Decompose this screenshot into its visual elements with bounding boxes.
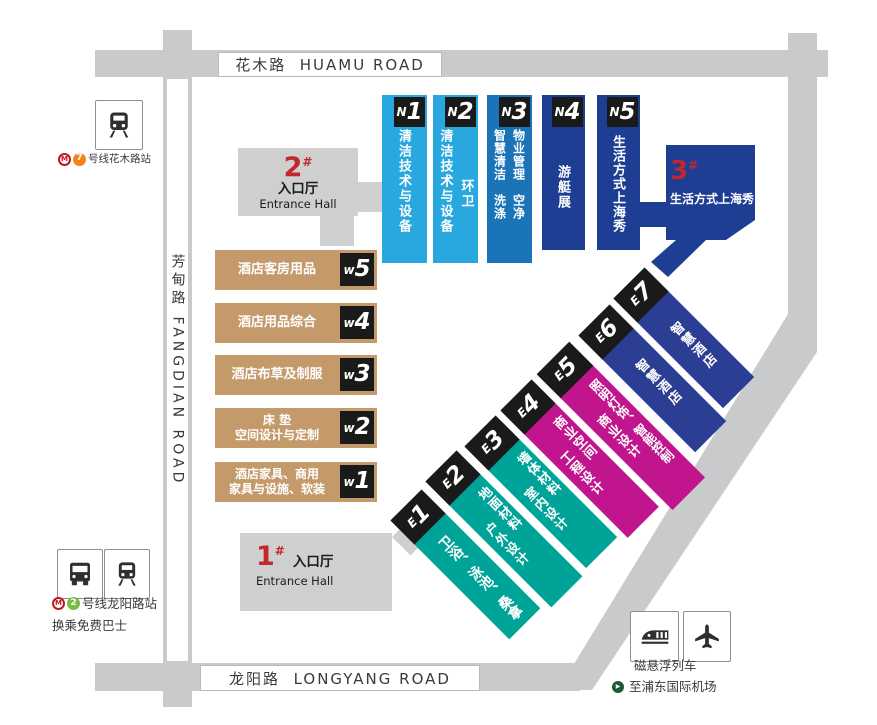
hall-n3-number: N3 — [499, 97, 530, 127]
hall-n1-letter: N — [396, 105, 406, 119]
hall-n4-label: 游艇展 — [542, 129, 585, 246]
bus-icon-box — [57, 549, 103, 599]
hall-w3-label: 酒店布草及制服 — [221, 355, 333, 395]
hall-n2-label: 清洁技术与设备环卫 — [433, 129, 478, 259]
maglev-label: 磁悬浮列车 — [612, 656, 772, 675]
expo-floor-map: 芳甸路 FANGDIAN ROAD 花木路 HUAMU ROAD 龙阳路 LON… — [0, 0, 877, 725]
hall-n1-digit: 1 — [407, 101, 423, 124]
train-icon — [104, 110, 134, 140]
entrance-1-name-en: Entrance Hall — [256, 574, 392, 589]
hall-n5-label: 生活方式上海秀 — [597, 129, 640, 246]
entrance-1-name-cn: 入口厅 — [293, 554, 334, 570]
hall-n4-number: N4 — [552, 97, 583, 127]
metro-line-7-badge: 7 — [73, 153, 86, 166]
airplane-icon-box — [683, 611, 731, 662]
hall-n5-number: N5 — [607, 97, 638, 127]
airplane-icon — [692, 622, 722, 652]
entrance-2-number: 2# — [238, 154, 358, 181]
hall-w4-label: 酒店用品综合 — [221, 303, 333, 343]
station-longyang: M 2 号线龙阳路站 换乘免费巴士 — [52, 594, 202, 636]
hall-w5-label: 酒店客房用品 — [221, 250, 333, 290]
bus-icon — [65, 559, 95, 589]
hall-w4-number: w4 — [340, 306, 374, 339]
metro-station-icon-box — [95, 100, 143, 150]
maglev-destination: 至浦东国际机场 — [629, 677, 717, 696]
hall-n3-label: 智慧清洁 洗涤物业管理 空净 — [487, 129, 532, 259]
hall-n5: N5 生活方式上海秀 — [597, 95, 640, 250]
hall-w3-number: w3 — [340, 358, 374, 391]
metro-line-2-badge: 2 — [67, 597, 80, 610]
train-icon — [113, 560, 141, 588]
road-longyang-label: 龙阳路 LONGYANG ROAD — [200, 665, 480, 691]
hall-w1-number: w1 — [340, 465, 374, 498]
hall-n4: N4 游艇展 — [542, 95, 585, 250]
station-huamu-label: 号线花木路站 — [88, 151, 151, 167]
entrance-hall-2: 2# 入口厅 Entrance Hall — [238, 148, 358, 216]
hall-n1-label: 清洁技术与设备 — [382, 129, 427, 259]
hall-3-number: 3# — [670, 158, 756, 184]
road-huamu-label: 花木路 HUAMU ROAD — [218, 52, 442, 77]
maglev-icon-box — [630, 611, 679, 662]
hall-n2: N2 清洁技术与设备环卫 — [433, 95, 478, 263]
hall-w2-number: w2 — [340, 411, 374, 444]
hall-w2: w2 床 垫空间设计与定制 — [215, 408, 377, 448]
hall-n1-number: N1 — [394, 97, 425, 127]
station-longyang-label: 号线龙阳路站 — [82, 594, 157, 613]
station-maglev: 磁悬浮列车 ▶ 至浦东国际机场 — [612, 656, 772, 697]
hall-w1-label: 酒店家具、商用家具与设施、软装 — [221, 462, 333, 502]
hall-w3: w3 酒店布草及制服 — [215, 355, 377, 395]
hall-n1: N1 清洁技术与设备 — [382, 95, 427, 263]
shanghai-metro-logo-icon: M — [58, 153, 71, 166]
hall-w2-label: 床 垫空间设计与定制 — [221, 408, 333, 448]
hall-w5: w5 酒店客房用品 — [215, 250, 377, 290]
entrance-2-name-cn: 入口厅 — [238, 181, 358, 197]
road-huamu — [95, 50, 828, 77]
entrance-2-name-en: Entrance Hall — [238, 197, 358, 212]
entrance-hall-1: 1# 入口厅 Entrance Hall — [240, 533, 392, 611]
hall-w5-number: w5 — [340, 253, 374, 286]
hall-n3: N3 智慧清洁 洗涤物业管理 空净 — [487, 95, 532, 263]
hall-n2-number: N2 — [445, 97, 476, 127]
entrance-1-number: 1# — [256, 543, 285, 570]
hall-w1: w1 酒店家具、商用家具与设施、软装 — [215, 462, 377, 502]
direction-arrow-icon: ▶ — [612, 681, 624, 693]
hall-w4: w4 酒店用品综合 — [215, 303, 377, 343]
maglev-train-icon — [639, 621, 671, 653]
metro-icon-box — [104, 549, 150, 599]
hall-3-label: 生活方式上海秀 — [670, 190, 756, 207]
station-longyang-sub: 换乘免费巴士 — [52, 616, 202, 635]
station-huamu: M 7 号线花木路站 — [58, 151, 188, 167]
entrance-2-stub — [320, 216, 354, 246]
road-fangdian-label: 芳甸路 FANGDIAN ROAD — [168, 254, 188, 486]
hall-3: 3# 生活方式上海秀 — [670, 158, 756, 207]
shanghai-metro-logo-icon: M — [52, 597, 65, 610]
